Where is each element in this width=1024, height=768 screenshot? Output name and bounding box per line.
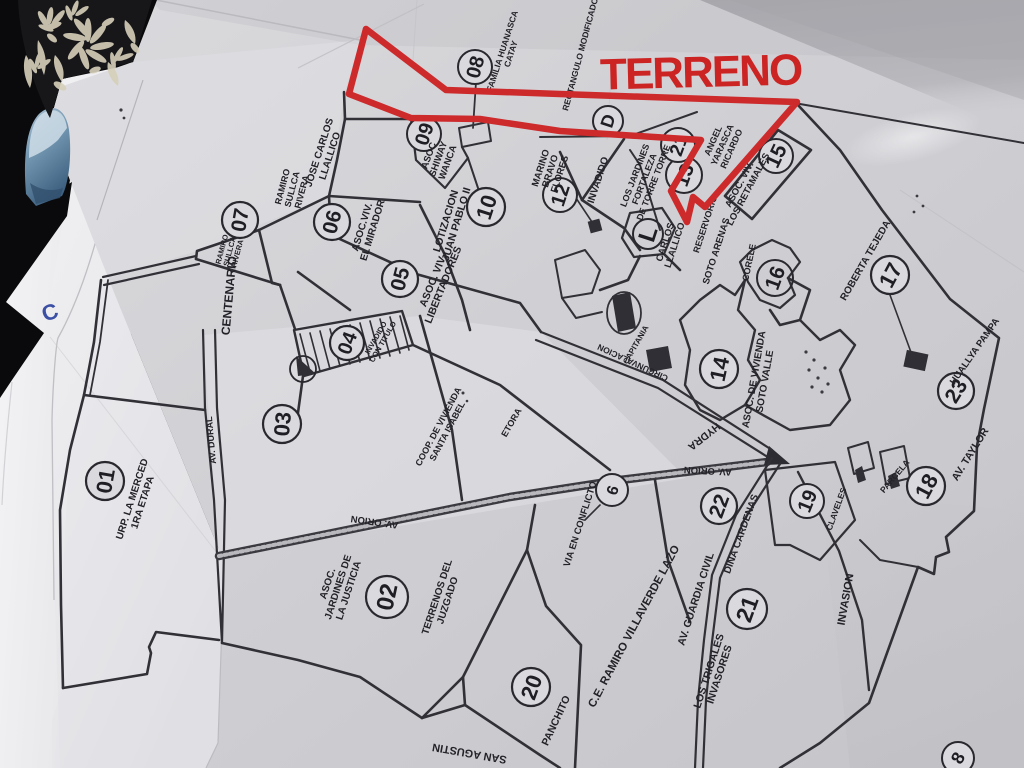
svg-text:TERRENO: TERRENO — [599, 45, 802, 99]
svg-text:02: 02 — [372, 581, 404, 613]
svg-text:07: 07 — [227, 207, 254, 234]
svg-text:01: 01 — [91, 467, 120, 495]
svg-text:03: 03 — [269, 411, 296, 438]
